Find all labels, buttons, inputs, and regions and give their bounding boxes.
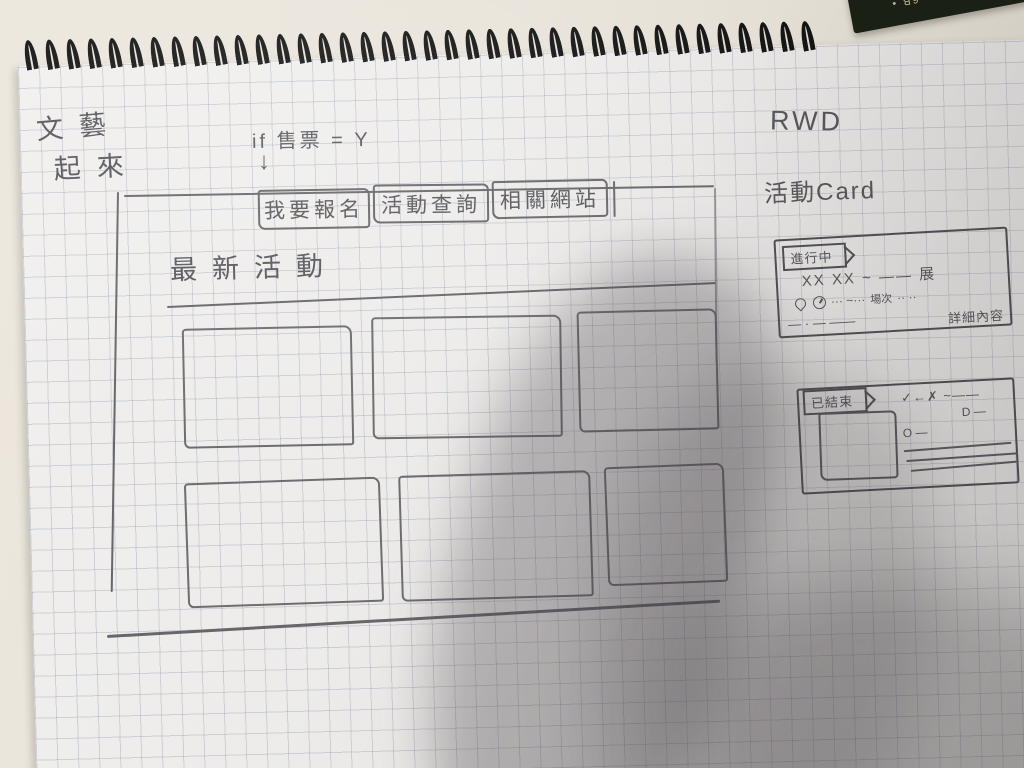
spiral-coil [610,25,627,57]
spiral-coil [379,30,396,62]
card-ended-content: ✓←✗ ~—— D — O — [901,384,1014,406]
nav-tab-search-label: 活動查詢 [381,188,481,219]
status-badge-ended-label: 已結束 [811,394,854,411]
pencil-separator: • [923,0,931,3]
spiral-coil [127,36,144,68]
condition-arrow-icon: ↓ [258,148,270,176]
nav-tab-register: 我要報名 [258,188,371,230]
pencil-grade: 6B [900,0,919,7]
bullet-row-d: D — [961,404,986,419]
bullet-dash: — [973,404,986,419]
notebook-photo: NERY CORP • 6B • 文藝 起來 if 售票 = Y ↓ 我要報名 … [0,0,1024,768]
spiral-coil [631,24,648,56]
spiral-coil [295,32,312,64]
footer-scribble: — · — —— [788,313,856,336]
activity-card-placeholder [398,470,594,602]
spiral-coil [148,36,165,68]
spiral-coil [190,35,207,67]
bullet-d-icon: D [961,405,970,419]
spiral-coil [568,26,585,58]
activity-card-detail-ended: 已結束 ✓←✗ ~—— D — O — [796,377,1019,494]
spiral-coil [505,27,522,59]
wave-scribble: ~—— [943,386,980,403]
nav-tab-register-label: 我要報名 [264,193,365,225]
pencil-separator2: • [890,0,898,9]
rwd-note: RWD [770,105,844,137]
location-pin-icon [793,295,809,311]
activity-card-detail-inprogress: 進行中 XX XX ~ —— 展 ··· ~··· 場次 ·· ·· — · —… [773,227,1012,339]
spiral-coil [64,38,81,70]
spiral-coil [232,34,249,66]
text-line-scribble [911,461,1017,472]
spiral-coil [715,22,732,54]
meta-scribble: ··· ~··· [831,293,866,309]
pencil-print-label: NERY CORP • 6B • [890,0,1017,9]
spiral-coil [673,23,690,55]
pencil-brand: NERY CORP [933,0,1017,1]
spiral-coil [463,28,480,60]
bullet-row-o: O — [902,425,927,440]
site-title-line1: 文藝 [35,102,138,152]
clock-icon [813,295,827,309]
spiral-coil [106,37,123,69]
spiral-coil [274,33,291,65]
activity-card-placeholder [182,325,354,449]
spiral-coil [169,35,186,67]
activity-card-placeholder [184,477,384,609]
spiral-coil [421,29,438,61]
spiral-coil [400,30,417,62]
bullet-o-icon: O [902,426,912,440]
status-badge-inprogress: 進行中 [782,243,847,272]
spiral-coil [547,26,564,58]
text-line-scribble [904,442,1012,452]
spiral-coil [253,33,270,65]
activity-card-placeholder [371,315,563,440]
activity-card-note: 活動Card [763,170,876,209]
pencil: NERY CORP • 6B • [846,0,1024,34]
site-title-line2: 起來 [53,145,141,191]
nav-tab-search: 活動查詢 [373,183,489,223]
nav-tab-links-label: 相關網站 [500,183,601,215]
text-line-scribble [906,452,1018,462]
spiral-coil [316,32,333,64]
spiral-coil [442,29,459,61]
card-image-placeholder [818,410,898,481]
bullet-dash: — [915,425,928,440]
site-title-note: 文藝 起來 [35,102,142,194]
spiral-coil [589,25,606,57]
spiral-coil [757,21,774,53]
spiral-coil [778,21,795,53]
spiral-coil [526,27,543,59]
card-meta-row: ··· ~··· 場次 ·· ·· [795,289,917,312]
spiral-coil [211,34,228,66]
spiral-coil [43,38,60,70]
session-trail-scribble: ·· ·· [897,290,917,305]
spiral-coil [799,20,816,52]
spiral-coil [85,37,102,69]
activity-card-placeholder [604,463,728,587]
spiral-coil [694,23,711,55]
status-badge-inprogress-label: 進行中 [790,249,833,266]
session-label: 場次 [870,290,893,307]
nav-tab-links: 相關網站 [492,179,609,219]
spiral-coil [358,31,375,63]
spiral-coil [484,28,501,60]
spiral-coil [337,31,354,63]
detail-link-label: 詳細內容 [947,305,1004,327]
activity-card-placeholder [577,308,720,432]
spiral-coil [736,22,753,54]
check-scribble: ✓←✗ [901,388,940,405]
spiral-coil [652,24,669,56]
spiral-coil [22,39,39,71]
section-heading: 最新活動 [169,244,338,288]
